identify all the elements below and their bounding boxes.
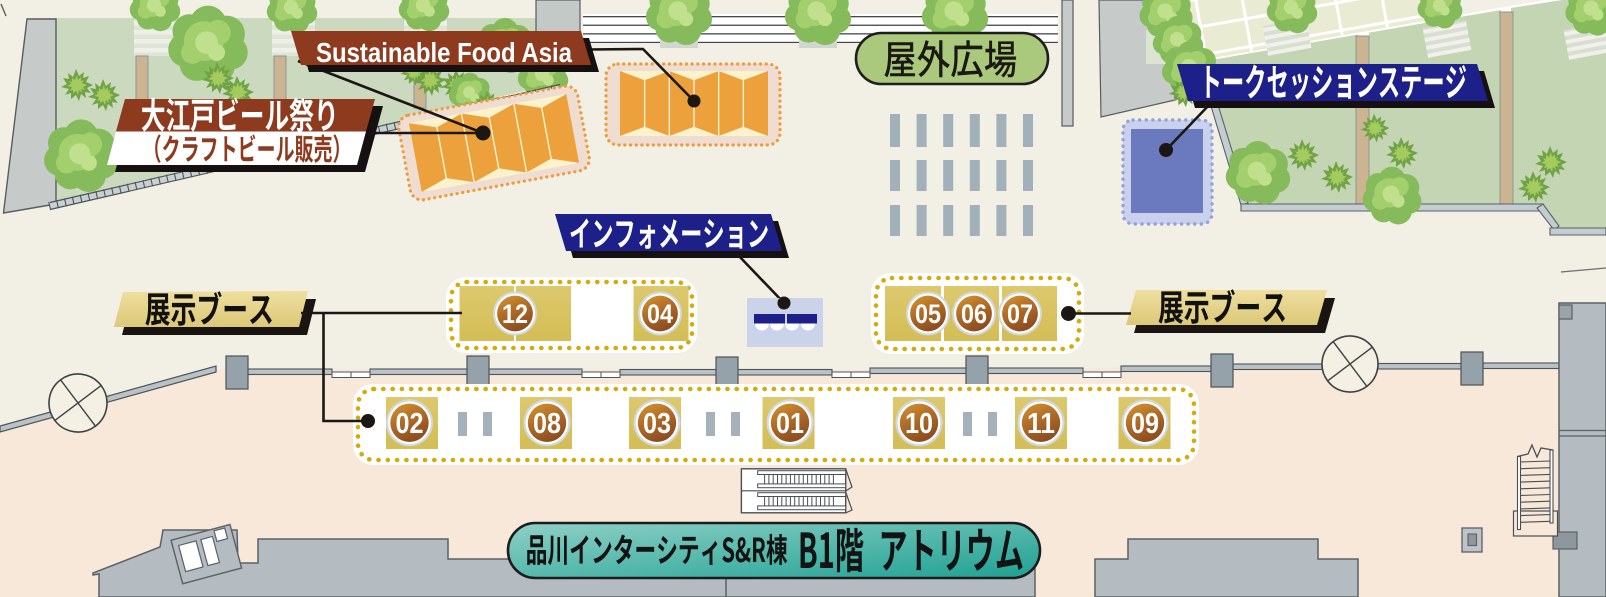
- svg-text:Sustainable Food Asia: Sustainable Food Asia: [316, 37, 572, 68]
- svg-text:09: 09: [1131, 408, 1159, 440]
- svg-text:11: 11: [1027, 408, 1055, 440]
- svg-text:01: 01: [776, 408, 804, 440]
- svg-text:08: 08: [533, 408, 561, 440]
- svg-text:06: 06: [961, 299, 987, 329]
- svg-text:04: 04: [647, 299, 673, 329]
- svg-text:07: 07: [1007, 299, 1033, 329]
- svg-text:10: 10: [905, 408, 933, 440]
- svg-text:05: 05: [915, 299, 941, 329]
- svg-text:03: 03: [643, 408, 671, 440]
- svg-text:12: 12: [502, 299, 528, 329]
- svg-text:02: 02: [396, 408, 424, 440]
